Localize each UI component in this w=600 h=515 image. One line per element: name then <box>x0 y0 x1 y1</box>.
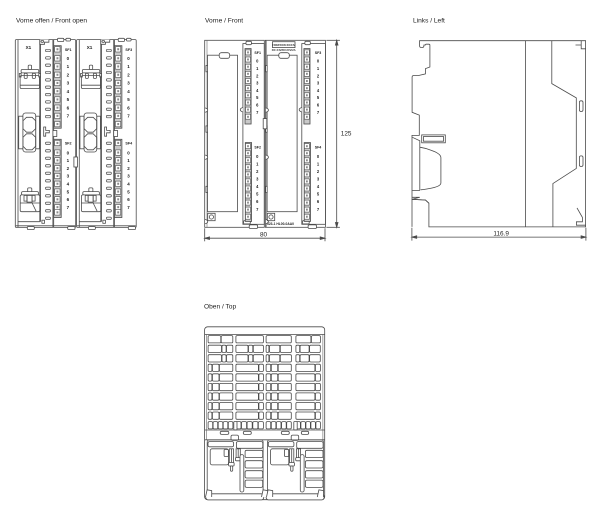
svg-text:3: 3 <box>317 177 320 182</box>
svg-text:6: 6 <box>256 199 259 204</box>
svg-text:5: 5 <box>317 95 320 100</box>
svg-text:SF2: SF2 <box>65 142 72 146</box>
svg-text:Links / Left: Links / Left <box>413 18 445 25</box>
svg-text:1: 1 <box>317 66 320 71</box>
svg-text:4: 4 <box>256 88 259 93</box>
svg-text:4: 4 <box>317 88 320 93</box>
svg-text:SF3: SF3 <box>125 48 132 52</box>
svg-text:Vorne / Front: Vorne / Front <box>205 18 243 25</box>
svg-text:2: 2 <box>317 73 320 78</box>
svg-text:125: 125 <box>341 131 352 138</box>
svg-text:2: 2 <box>256 169 259 174</box>
svg-text:4: 4 <box>317 184 320 189</box>
svg-text:5: 5 <box>317 192 320 197</box>
svg-text:7: 7 <box>256 207 259 212</box>
svg-text:SF1: SF1 <box>254 51 261 55</box>
svg-text:1: 1 <box>317 161 320 166</box>
svg-text:DC 24V/DC24V/2A: DC 24V/DC24V/2A <box>272 48 296 52</box>
svg-text:2: 2 <box>317 169 320 174</box>
svg-text:0: 0 <box>317 154 320 159</box>
svg-text:6: 6 <box>256 103 259 108</box>
svg-text:6: 6 <box>317 103 320 108</box>
svg-text:3: 3 <box>256 177 259 182</box>
svg-text:SF2: SF2 <box>254 145 261 149</box>
svg-text:3: 3 <box>256 81 259 86</box>
svg-text:80: 80 <box>260 232 268 239</box>
svg-text:X1: X1 <box>87 45 93 50</box>
svg-text:X1: X1 <box>26 45 32 50</box>
svg-text:3: 3 <box>317 81 320 86</box>
svg-text:5: 5 <box>256 192 259 197</box>
svg-text:7: 7 <box>256 110 259 115</box>
svg-text:SF1: SF1 <box>65 48 72 52</box>
svg-text:5: 5 <box>256 95 259 100</box>
svg-text:SF4: SF4 <box>315 145 322 149</box>
svg-text:4: 4 <box>256 184 259 189</box>
svg-text:0: 0 <box>256 154 259 159</box>
svg-text:7: 7 <box>317 207 320 212</box>
svg-text:FDI8/FDO8×DC24V: FDI8/FDO8×DC24V <box>272 43 295 47</box>
svg-text:6: 6 <box>317 199 320 204</box>
svg-text:1: 1 <box>256 161 259 166</box>
svg-text:7: 7 <box>317 110 320 115</box>
svg-text:SF3: SF3 <box>315 51 322 55</box>
svg-text:0: 0 <box>256 59 259 64</box>
svg-text:1: 1 <box>256 66 259 71</box>
svg-text:0: 0 <box>317 59 320 64</box>
svg-text:Oben / Top: Oben / Top <box>204 304 236 311</box>
svg-text:2: 2 <box>256 73 259 78</box>
svg-text:323-1 HL00-0AA0: 323-1 HL00-0AA0 <box>267 222 294 226</box>
svg-text:Vorne offen / Front open: Vorne offen / Front open <box>16 18 87 25</box>
svg-text:SF4: SF4 <box>125 142 133 146</box>
svg-text:116.9: 116.9 <box>493 230 509 237</box>
